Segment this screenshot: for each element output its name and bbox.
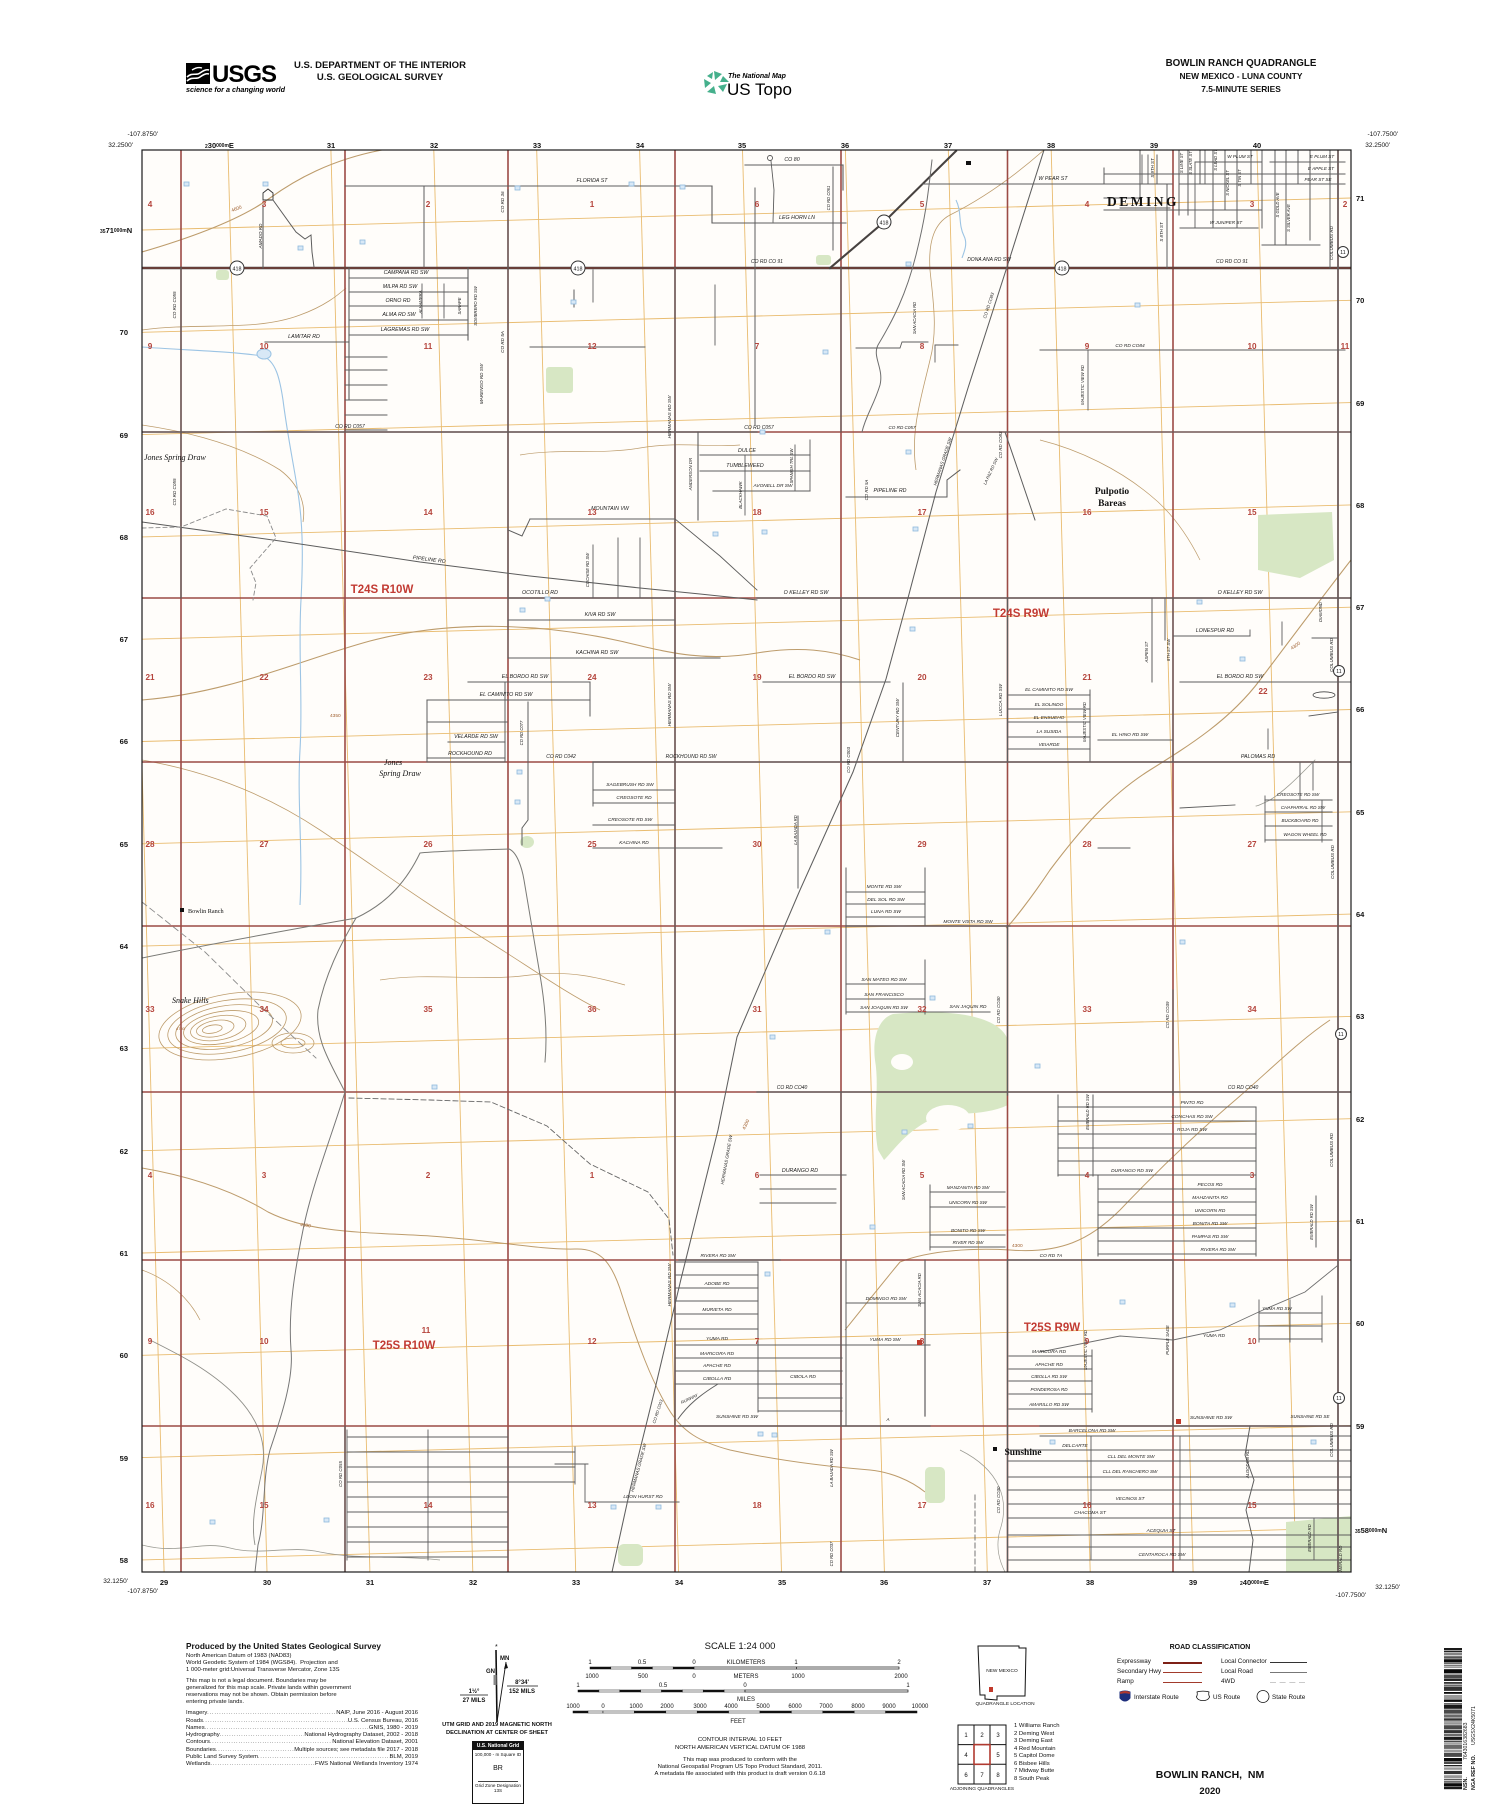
svg-text:66: 66: [1356, 705, 1364, 714]
svg-text:CO RD C055: CO RD C055: [172, 291, 177, 319]
svg-text:SUNSHINE RD SE: SUNSHINE RD SE: [1290, 1414, 1330, 1419]
svg-text:CLL DEL RANCHERO SW: CLL DEL RANCHERO SW: [1103, 1469, 1158, 1474]
svg-text:38: 38: [1086, 1578, 1094, 1587]
svg-text:68: 68: [1356, 501, 1364, 510]
svg-text:25: 25: [587, 840, 597, 849]
svg-text:CO RD C042: CO RD C042: [546, 754, 576, 760]
svg-text:3558000mN: 3558000mN: [1355, 1526, 1387, 1535]
svg-text:64: 64: [1356, 910, 1365, 919]
svg-text:BLACKHAWK: BLACKHAWK: [738, 480, 743, 509]
svg-text:MOUNTAIN VW: MOUNTAIN VW: [591, 506, 630, 512]
svg-text:CO RD C061: CO RD C061: [826, 186, 831, 211]
svg-text:28: 28: [145, 840, 155, 849]
svg-text:418: 418: [1058, 266, 1067, 272]
svg-text:36: 36: [880, 1578, 888, 1587]
svg-text:CHACOMA ST: CHACOMA ST: [1074, 1510, 1107, 1516]
svg-text:7: 7: [755, 342, 760, 351]
svg-text:VECINOS ST: VECINOS ST: [1115, 1496, 1145, 1502]
svg-text:Sunshine: Sunshine: [1005, 1448, 1042, 1458]
svg-text:33: 33: [145, 1005, 155, 1014]
svg-text:1: 1: [794, 1660, 798, 1666]
svg-text:12: 12: [587, 342, 597, 351]
svg-text:COLUMBUS RD: COLUMBUS RD: [1329, 1422, 1334, 1457]
svg-text:3: 3: [1250, 200, 1255, 209]
svg-text:ROCKHOUND RD: ROCKHOUND RD: [448, 751, 492, 757]
svg-text:70: 70: [120, 328, 128, 337]
svg-text:CREOSOTE RD SW: CREOSOTE RD SW: [608, 817, 653, 823]
svg-text:67: 67: [120, 635, 128, 644]
svg-text:NGA REF NO.: NGA REF NO.: [1471, 1754, 1477, 1790]
svg-text:YUMA RD SW: YUMA RD SW: [1262, 1306, 1292, 1311]
svg-text:63: 63: [120, 1044, 128, 1053]
svg-text:S NICKEL ST: S NICKEL ST: [1225, 170, 1230, 196]
svg-text:KILOMETERS: KILOMETERS: [727, 1660, 766, 1666]
svg-text:ALMA RD SW: ALMA RD SW: [381, 312, 416, 318]
svg-text:16: 16: [145, 508, 155, 517]
svg-text:CONCHAS RD SW: CONCHAS RD SW: [1171, 1114, 1213, 1120]
svg-text:T24S R10W: T24S R10W: [351, 584, 414, 596]
svg-text:32.1250': 32.1250': [1375, 1584, 1400, 1591]
svg-text:0: 0: [692, 1660, 696, 1666]
svg-text:Pulpotio: Pulpotio: [1095, 487, 1130, 497]
svg-text:17: 17: [917, 1501, 927, 1510]
svg-text:65: 65: [1356, 808, 1364, 817]
svg-text:9: 9: [148, 1337, 153, 1346]
svg-text:8°34': 8°34': [515, 1680, 529, 1686]
svg-text:9: 9: [1085, 1337, 1090, 1346]
svg-text:PECOS RD: PECOS RD: [1197, 1182, 1223, 1188]
svg-text:64: 64: [120, 942, 129, 951]
svg-text:11: 11: [1340, 250, 1345, 256]
svg-text:38: 38: [1047, 141, 1055, 150]
svg-text:CO RD C077: CO RD C077: [519, 720, 524, 745]
svg-text:HERMANAS RD SW: HERMANAS RD SW: [667, 395, 672, 438]
svg-text:11: 11: [1336, 1396, 1341, 1402]
svg-text:DULCE: DULCE: [738, 448, 756, 454]
svg-text:SPANISH TRL SW: SPANISH TRL SW: [789, 447, 794, 483]
svg-text:ACEQUIA ST: ACEQUIA ST: [1146, 1528, 1177, 1534]
svg-text:4350: 4350: [330, 713, 341, 719]
svg-text:CO RD CO30: CO RD CO30: [996, 996, 1001, 1023]
svg-text:5: 5: [996, 1753, 1000, 1759]
svg-text:LAGREMAS RD SW: LAGREMAS RD SW: [381, 327, 431, 333]
svg-text:USGSX24K5071: USGSX24K5071: [1471, 1706, 1477, 1745]
svg-text:11: 11: [1336, 669, 1341, 675]
svg-text:34: 34: [636, 141, 645, 150]
svg-text:1: 1: [906, 1683, 910, 1689]
svg-text:418: 418: [574, 266, 583, 272]
svg-text:LEG HORN LN: LEG HORN LN: [779, 215, 815, 221]
svg-text:MARENGO RD SW: MARENGO RD SW: [479, 363, 484, 404]
svg-text:35: 35: [778, 1578, 786, 1587]
svg-text:DIAMOND: DIAMOND: [1318, 602, 1323, 622]
svg-text:S LIME ST: S LIME ST: [1179, 152, 1184, 173]
svg-text:LA BAJADA RD: LA BAJADA RD: [793, 815, 798, 844]
svg-text:CAMPANA RD SW: CAMPANA RD SW: [384, 270, 430, 276]
svg-text:16: 16: [145, 1501, 155, 1510]
svg-text:CO RD C055: CO RD C055: [338, 1461, 343, 1487]
svg-text:CO RD 7A: CO RD 7A: [1040, 1253, 1063, 1259]
svg-text:CO RD 5A: CO RD 5A: [500, 331, 505, 353]
svg-text:CLL DEL MONTE SW: CLL DEL MONTE SW: [1107, 1454, 1154, 1460]
svg-text:9: 9: [1085, 342, 1090, 351]
svg-text:61: 61: [1356, 1217, 1364, 1226]
svg-text:31: 31: [327, 141, 335, 150]
svg-text:35: 35: [423, 1005, 433, 1014]
svg-text:14: 14: [423, 1501, 433, 1510]
svg-text:CHAPARRAL RD SW: CHAPARRAL RD SW: [1281, 805, 1326, 810]
svg-text:EMERALD RD: EMERALD RD: [1338, 1545, 1343, 1575]
svg-text:60: 60: [1356, 1319, 1364, 1328]
svg-text:22: 22: [259, 673, 269, 682]
svg-text:ADOBE RD: ADOBE RD: [703, 1281, 730, 1287]
svg-text:CREOSOTE RD: CREOSOTE RD: [616, 795, 652, 801]
svg-text:2000: 2000: [660, 1704, 674, 1710]
svg-text:1000: 1000: [791, 1674, 805, 1680]
svg-text:BUCKBOARD RD: BUCKBOARD RD: [1281, 818, 1319, 823]
svg-text:CO RD CO30: CO RD CO30: [996, 1486, 1001, 1513]
svg-text:O KELLEY RD SW: O KELLEY RD SW: [784, 590, 830, 596]
svg-text:ROJA RD SW: ROJA RD SW: [1177, 1127, 1207, 1133]
svg-text:CIBOLLA RD SW: CIBOLLA RD SW: [1031, 1374, 1067, 1379]
svg-text:8000: 8000: [851, 1704, 865, 1710]
svg-text:EMERALD RD SW: EMERALD RD SW: [1085, 1093, 1090, 1129]
svg-text:40: 40: [1253, 141, 1261, 150]
svg-text:4000: 4000: [724, 1704, 738, 1710]
svg-text:61: 61: [120, 1249, 128, 1258]
svg-text:2: 2: [426, 200, 431, 209]
svg-text:19: 19: [752, 673, 762, 682]
svg-text:6: 6: [755, 200, 760, 209]
svg-text:Bareas: Bareas: [1098, 499, 1126, 509]
svg-text:CO RD C055: CO RD C055: [172, 478, 177, 506]
svg-text:PALOMAS RD: PALOMAS RD: [1241, 754, 1276, 760]
svg-text:5000: 5000: [756, 1704, 770, 1710]
svg-text:10: 10: [259, 342, 269, 351]
svg-text:0.5: 0.5: [638, 1660, 647, 1666]
svg-text:26: 26: [423, 840, 433, 849]
svg-text:PEAR ST SE: PEAR ST SE: [1304, 177, 1332, 182]
svg-text:MURIETA RD: MURIETA RD: [702, 1307, 732, 1313]
svg-text:MN: MN: [500, 1656, 509, 1662]
svg-text:23: 23: [423, 673, 433, 682]
svg-text:FEET: FEET: [730, 1719, 746, 1725]
svg-text:SAN ACACIA RD: SAN ACACIA RD: [912, 302, 917, 334]
svg-text:CO RD CO40: CO RD CO40: [1228, 1085, 1259, 1091]
svg-text:YUMA RD: YUMA RD: [1203, 1333, 1225, 1339]
svg-text:WAGON WHEEL RD: WAGON WHEEL RD: [1283, 832, 1327, 837]
svg-text:31: 31: [366, 1578, 374, 1587]
svg-text:11: 11: [1338, 1032, 1343, 1038]
svg-text:HERMANAS RD SW: HERMANAS RD SW: [667, 1263, 672, 1306]
svg-text:10: 10: [1247, 342, 1257, 351]
svg-text:4: 4: [1085, 200, 1090, 209]
svg-text:S LEAD ST: S LEAD ST: [1213, 149, 1218, 171]
svg-text:UNICORN RD SW: UNICORN RD SW: [949, 1200, 988, 1205]
svg-text:27: 27: [259, 840, 269, 849]
svg-text:W PLUM ST: W PLUM ST: [1227, 154, 1254, 159]
svg-text:CO RD CO 91: CO RD CO 91: [1216, 259, 1248, 265]
svg-text:T24S R9W: T24S R9W: [993, 608, 1049, 620]
svg-text:Jones Spring Draw: Jones Spring Draw: [144, 453, 206, 462]
svg-text:230000mE: 230000mE: [205, 141, 234, 150]
svg-text:CO RD C057: CO RD C057: [744, 425, 774, 431]
svg-text:29: 29: [160, 1578, 168, 1587]
svg-text:ROCKHOUND RD SW: ROCKHOUND RD SW: [666, 754, 718, 760]
svg-text:S SILVER AVE: S SILVER AVE: [1286, 204, 1291, 232]
svg-text:14: 14: [423, 508, 433, 517]
svg-text:8: 8: [996, 1773, 1000, 1779]
svg-text:58: 58: [120, 1556, 128, 1565]
svg-text:BARCELONA RD SW: BARCELONA RD SW: [1069, 1428, 1116, 1434]
svg-text:31: 31: [752, 1005, 762, 1014]
svg-text:O KELLEY RD SW: O KELLEY RD SW: [1218, 590, 1264, 596]
svg-text:6: 6: [964, 1773, 968, 1779]
svg-text:FLORIDA ST: FLORIDA ST: [576, 178, 608, 184]
svg-text:T25S R10W: T25S R10W: [373, 1340, 436, 1352]
svg-text:59: 59: [120, 1454, 128, 1463]
svg-text:1000: 1000: [566, 1704, 580, 1710]
svg-text:MILES: MILES: [737, 1697, 755, 1703]
svg-text:US Route: US Route: [1213, 1694, 1241, 1701]
svg-text:RIVER RD SW: RIVER RD SW: [953, 1240, 984, 1245]
svg-text:ANDERSON DR: ANDERSON DR: [688, 457, 693, 491]
svg-text:70: 70: [1356, 296, 1364, 305]
svg-text:CIBOLA RD: CIBOLA RD: [790, 1374, 816, 1380]
svg-text:CO RD C057: CO RD C057: [335, 424, 365, 430]
svg-text:-107.7500': -107.7500': [1335, 1592, 1366, 1599]
svg-text:37: 37: [944, 141, 952, 150]
svg-text:10000: 10000: [912, 1704, 929, 1710]
svg-text:YUMA RD: YUMA RD: [706, 1336, 728, 1342]
svg-text:COCHISE RD SW: COCHISE RD SW: [585, 552, 590, 587]
svg-text:7643016382683: 7643016382683: [1463, 1722, 1469, 1760]
svg-text:1: 1: [590, 200, 595, 209]
svg-text:AMADO RD: AMADO RD: [258, 223, 263, 249]
svg-text:3000: 3000: [693, 1704, 707, 1710]
svg-text:1000: 1000: [585, 1674, 599, 1680]
svg-text:HERMANAS RD SW: HERMANAS RD SW: [667, 683, 672, 726]
svg-text:-107.7500': -107.7500': [1367, 131, 1398, 138]
svg-text:4750: 4750: [176, 1026, 186, 1031]
svg-text:SAGEBRUSH RD SW: SAGEBRUSH RD SW: [606, 782, 654, 788]
svg-text:34: 34: [1247, 1005, 1257, 1014]
svg-text:32: 32: [430, 141, 438, 150]
svg-text:E APPLE ST: E APPLE ST: [1308, 166, 1335, 171]
svg-text:3: 3: [262, 1171, 267, 1180]
svg-text:EL ENSUEHO: EL ENSUEHO: [1034, 715, 1065, 721]
svg-text:4: 4: [148, 1171, 153, 1180]
svg-text:LUCCA RD SW: LUCCA RD SW: [998, 683, 1003, 716]
svg-text:EL SOLINDO: EL SOLINDO: [1035, 702, 1064, 708]
svg-text:DURANGO RD: DURANGO RD: [782, 1168, 818, 1174]
svg-text:24: 24: [587, 673, 597, 682]
svg-text:MAHZANITA RD: MAHZANITA RD: [1192, 1195, 1228, 1201]
svg-text:NSN.: NSN.: [1463, 1777, 1469, 1790]
svg-text:34: 34: [675, 1578, 684, 1587]
svg-text:ASPEN ST: ASPEN ST: [1144, 641, 1149, 663]
svg-text:DONA ANA RD SW: DONA ANA RD SW: [967, 257, 1012, 263]
svg-text:60: 60: [120, 1351, 128, 1360]
svg-text:418: 418: [233, 266, 242, 272]
svg-text:COLUMBUS RD: COLUMBUS RD: [1329, 1132, 1334, 1167]
svg-text:4: 4: [1085, 1171, 1090, 1180]
svg-text:A: A: [885, 1417, 889, 1422]
svg-text:MAJESTIC VIEW RD: MAJESTIC VIEW RD: [1082, 702, 1087, 742]
svg-text:SAN ACACIA RD: SAN ACACIA RD: [917, 1272, 922, 1307]
svg-text:Snake Hills: Snake Hills: [172, 996, 209, 1005]
svg-text:Bowlin Ranch: Bowlin Ranch: [188, 908, 224, 915]
svg-text:CO 80: CO 80: [784, 157, 799, 163]
svg-text:Interstate Route: Interstate Route: [1134, 1694, 1179, 1701]
svg-text:11: 11: [422, 1326, 431, 1335]
svg-text:9: 9: [148, 342, 153, 351]
svg-text:59: 59: [1356, 1422, 1364, 1431]
svg-text:8: 8: [920, 342, 925, 351]
svg-text:EL HINO RD SW: EL HINO RD SW: [1112, 732, 1149, 738]
svg-text:68: 68: [120, 533, 128, 542]
svg-text:1: 1: [576, 1683, 580, 1689]
svg-text:39: 39: [1150, 141, 1158, 150]
svg-text:28: 28: [1082, 840, 1092, 849]
svg-text:32: 32: [469, 1578, 477, 1587]
svg-text:SAN ACACIA RD SW: SAN ACACIA RD SW: [901, 1159, 906, 1200]
svg-text:CIBOLLA RD: CIBOLLA RD: [703, 1376, 732, 1382]
svg-text:0: 0: [692, 1674, 696, 1680]
svg-text:MONTE VISTA RD SW: MONTE VISTA RD SW: [943, 919, 993, 925]
svg-text:DEL SOL RD SW: DEL SOL RD SW: [867, 897, 905, 903]
svg-text:MONTE RD SW: MONTE RD SW: [867, 884, 902, 890]
svg-text:*: *: [495, 1644, 498, 1651]
svg-text:LA BAJADA RD SW: LA BAJADA RD SW: [829, 1448, 834, 1486]
svg-text:1: 1: [590, 1171, 595, 1180]
svg-text:ALGODON RD: ALGODON RD: [1245, 1450, 1250, 1479]
svg-text:CENTURY RD SW: CENTURY RD SW: [895, 698, 900, 737]
svg-text:EL CAMINITO RD SW: EL CAMINITO RD SW: [480, 692, 534, 698]
svg-text:0: 0: [601, 1704, 605, 1710]
svg-text:18: 18: [752, 1501, 762, 1510]
svg-text:EMERALD RD SW: EMERALD RD SW: [1309, 1203, 1314, 1239]
svg-text:SUNSHINE RD SW: SUNSHINE RD SW: [716, 1414, 759, 1420]
svg-text:S TIN ST: S TIN ST: [1237, 169, 1242, 187]
svg-text:CREOSOTE RD SW: CREOSOTE RD SW: [1277, 792, 1320, 797]
svg-text:9000: 9000: [882, 1704, 896, 1710]
svg-text:MARICORA RD: MARICORA RD: [1032, 1349, 1066, 1355]
svg-text:State Route: State Route: [1272, 1694, 1306, 1701]
svg-text:2000: 2000: [894, 1674, 908, 1680]
svg-text:65: 65: [120, 840, 128, 849]
svg-text:COLUMBUS RD: COLUMBUS RD: [1329, 225, 1334, 260]
svg-text:29: 29: [917, 840, 927, 849]
svg-text:15: 15: [1247, 1501, 1257, 1510]
svg-text:LUNA RD SW: LUNA RD SW: [871, 909, 901, 915]
svg-text:CO RD 5A: CO RD 5A: [864, 480, 869, 501]
svg-text:36: 36: [841, 141, 849, 150]
svg-text:TUMBLEWEED: TUMBLEWEED: [726, 463, 764, 469]
svg-text:1: 1: [964, 1733, 968, 1739]
svg-text:CO RD C037: CO RD C037: [829, 1541, 834, 1566]
svg-text:LAMITAR RD: LAMITAR RD: [288, 334, 320, 340]
svg-text:3: 3: [1250, 1171, 1255, 1180]
svg-text:1½°: 1½°: [469, 1688, 480, 1695]
svg-text:DELCARTE: DELCARTE: [1062, 1443, 1088, 1449]
svg-text:21: 21: [145, 673, 155, 682]
svg-text:EMERALD RD: EMERALD RD: [1307, 1524, 1312, 1551]
svg-text:APACHE RD: APACHE RD: [702, 1363, 731, 1369]
svg-text:7000: 7000: [819, 1704, 833, 1710]
svg-text:8: 8: [920, 1337, 925, 1346]
svg-text:MARICORA RD: MARICORA RD: [700, 1351, 734, 1357]
svg-text:3571000mN: 3571000mN: [100, 226, 132, 235]
svg-text:152 MILS: 152 MILS: [509, 1689, 535, 1695]
svg-text:EL BORDO RD SW: EL BORDO RD SW: [502, 674, 549, 680]
svg-text:32.2500': 32.2500': [108, 142, 133, 149]
svg-text:METERS: METERS: [733, 1674, 758, 1680]
svg-text:62: 62: [120, 1147, 128, 1156]
svg-text:7: 7: [755, 1337, 760, 1346]
svg-text:15: 15: [1247, 508, 1257, 517]
svg-text:18: 18: [752, 508, 762, 517]
svg-text:KACHINA RD: KACHINA RD: [619, 840, 649, 846]
svg-text:CO RD C057: CO RD C057: [888, 425, 916, 430]
svg-text:69: 69: [120, 431, 128, 440]
svg-text:500: 500: [638, 1674, 649, 1680]
svg-text:VEIARDE: VEIARDE: [1038, 742, 1060, 748]
svg-text:-107.8750': -107.8750': [127, 131, 158, 138]
svg-text:EL BORDO RD SW: EL BORDO RD SW: [789, 674, 836, 680]
svg-text:T25S R9W: T25S R9W: [1024, 1322, 1080, 1334]
svg-text:32.1250': 32.1250': [103, 1578, 128, 1585]
svg-text:COLUMBUS RD: COLUMBUS RD: [1329, 637, 1334, 672]
svg-text:S 9TH ST: S 9TH ST: [1150, 158, 1155, 178]
svg-text:APACHE RD: APACHE RD: [1034, 1362, 1063, 1368]
svg-text:BONITO RD SW: BONITO RD SW: [951, 1228, 986, 1233]
svg-text:2: 2: [426, 1171, 431, 1180]
svg-text:10: 10: [1247, 1337, 1257, 1346]
svg-text:6000: 6000: [788, 1704, 802, 1710]
svg-text:69: 69: [1356, 399, 1364, 408]
svg-text:CENTAROCA RD SW: CENTAROCA RD SW: [1139, 1552, 1186, 1558]
svg-text:RIVERA RD SW: RIVERA RD SW: [700, 1253, 735, 1259]
svg-text:2: 2: [1343, 200, 1348, 209]
svg-text:VELARDE RD SW: VELARDE RD SW: [454, 734, 499, 740]
svg-text:CO RD CO 91: CO RD CO 91: [751, 259, 783, 265]
svg-text:PONDEROSA RD: PONDEROSA RD: [1030, 1387, 1068, 1392]
svg-text:YUMA RD SW: YUMA RD SW: [869, 1337, 900, 1343]
svg-text:PINTO RD: PINTO RD: [1181, 1100, 1204, 1106]
svg-text:SAN FRANCISCO: SAN FRANCISCO: [864, 992, 904, 998]
svg-text:SAN JOAQUIN RD SW: SAN JOAQUIN RD SW: [860, 1005, 908, 1010]
svg-text:2: 2: [897, 1660, 901, 1666]
svg-text:S GOLD AVE: S GOLD AVE: [1275, 192, 1280, 217]
svg-text:ALHAMBRA: ALHAMBRA: [418, 290, 423, 314]
svg-text:PURPLE SAGE: PURPLE SAGE: [1165, 1325, 1170, 1355]
svg-text:15: 15: [259, 508, 269, 517]
svg-text:UNICORN RD: UNICORN RD: [1195, 1208, 1226, 1214]
svg-text:0.5: 0.5: [659, 1683, 668, 1689]
svg-text:32: 32: [917, 1005, 927, 1014]
svg-text:30: 30: [263, 1578, 271, 1587]
svg-text:16: 16: [1082, 1501, 1092, 1510]
svg-text:4: 4: [148, 200, 153, 209]
svg-text:DEMING: DEMING: [1107, 194, 1179, 209]
svg-text:Spring Draw: Spring Draw: [379, 769, 421, 778]
svg-text:71: 71: [1356, 194, 1364, 203]
svg-text:418: 418: [880, 220, 889, 226]
svg-text:13: 13: [587, 1501, 597, 1510]
svg-text:16: 16: [1082, 508, 1092, 517]
svg-text:S SLATE ST: S SLATE ST: [1188, 151, 1193, 175]
